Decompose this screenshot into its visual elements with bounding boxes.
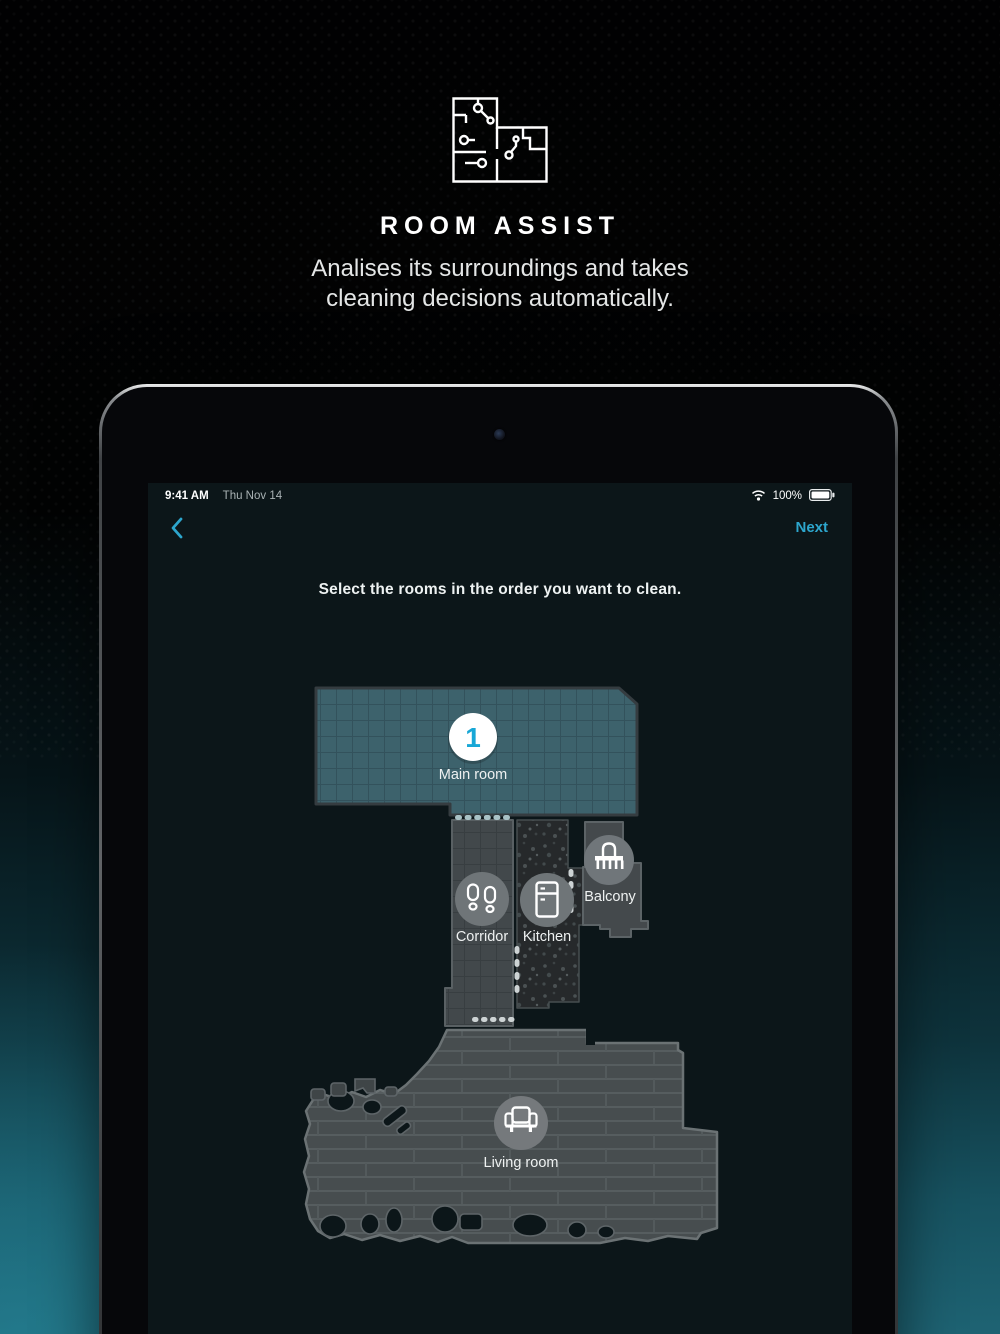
main-room-label: Main room: [439, 767, 508, 783]
page-subtitle: Analises its surroundings and takes clea…: [0, 254, 1000, 314]
balcony-label: Balcony: [584, 889, 636, 905]
living-room-label: Living room: [484, 1155, 559, 1171]
page-title: ROOM ASSIST: [0, 212, 1000, 241]
kitchen-badge[interactable]: [520, 873, 574, 927]
kitchen-label: Kitchen: [523, 929, 571, 945]
front-camera: [494, 429, 505, 440]
order-number: 1: [465, 722, 481, 753]
floor-map: 1 Main room Corridor: [148, 483, 852, 1334]
living-room-badge[interactable]: [494, 1096, 548, 1150]
corridor-label: Corridor: [456, 929, 509, 945]
subtitle-line-1: Analises its surroundings and takes: [0, 254, 1000, 284]
page: ROOM ASSIST Analises its surroundings an…: [0, 0, 1000, 1334]
app-screen: 9:41 AM Thu Nov 14 100%: [148, 483, 852, 1334]
main-room-order-badge[interactable]: 1: [448, 713, 498, 764]
subtitle-line-2: cleaning decisions automatically.: [0, 284, 1000, 314]
wall-notch: [586, 1028, 595, 1045]
room-assist-floorplan-icon: [452, 97, 548, 188]
balcony-badge[interactable]: [584, 835, 634, 885]
corridor-badge[interactable]: [455, 872, 509, 926]
